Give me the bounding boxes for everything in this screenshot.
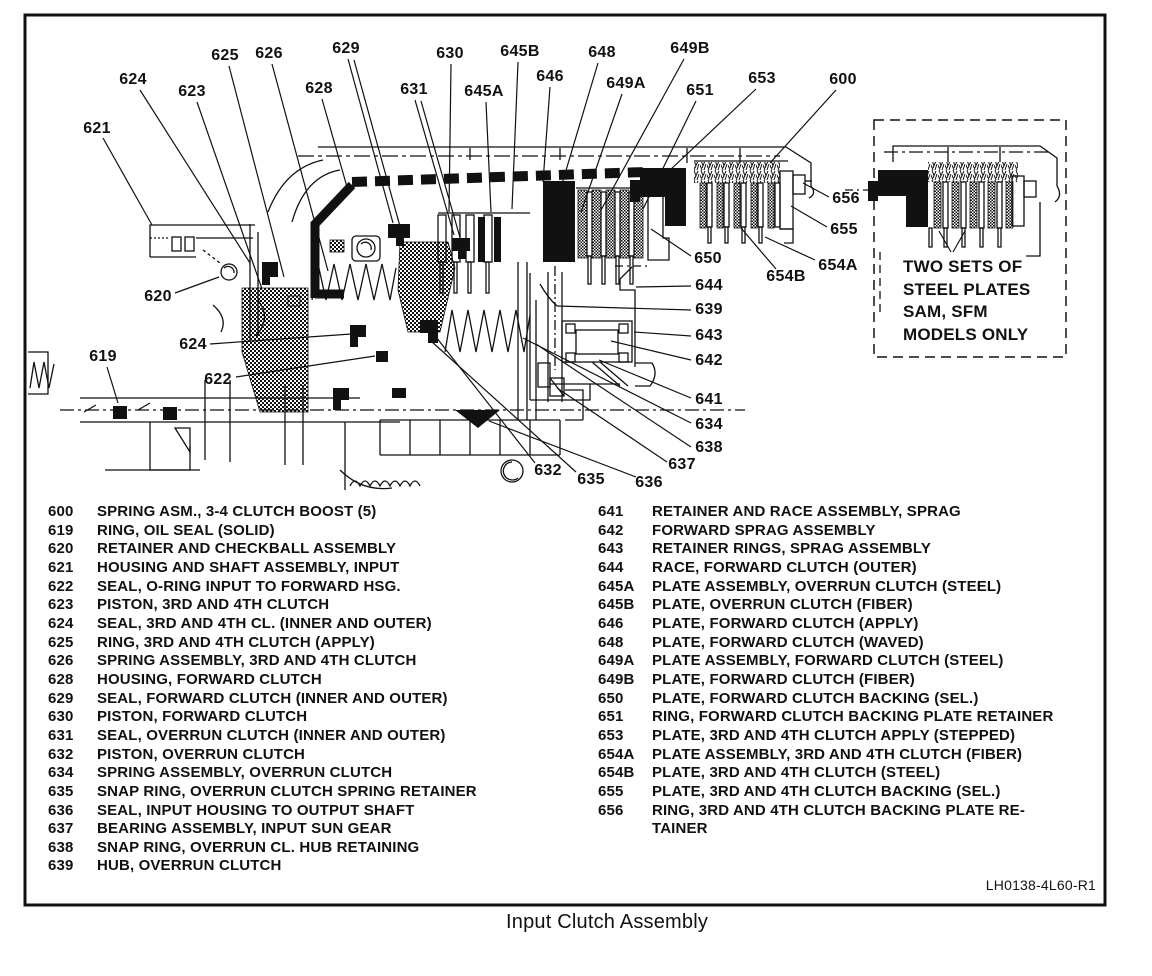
- part-row: 619RING, OIL SEAL (SOLID): [48, 522, 477, 541]
- part-number: 639: [48, 857, 97, 876]
- callout-655: 655: [830, 221, 858, 239]
- part-number: 629: [48, 690, 97, 709]
- part-number: 645B: [598, 596, 652, 615]
- callout-619: 619: [89, 348, 117, 366]
- inset-note-line: TWO SETS OF: [903, 256, 1030, 279]
- part-number: 635: [48, 783, 97, 802]
- part-description: SPRING ASSEMBLY, OVERRUN CLUTCH: [97, 764, 392, 783]
- part-row: 634SPRING ASSEMBLY, OVERRUN CLUTCH: [48, 764, 477, 783]
- callout-644: 644: [695, 277, 723, 295]
- part-description: SEAL, 3RD AND 4TH CL. (INNER AND OUTER): [97, 615, 432, 634]
- part-row: 620RETAINER AND CHECKBALL ASSEMBLY: [48, 540, 477, 559]
- inset-note-line: MODELS ONLY: [903, 324, 1030, 347]
- part-row: 637BEARING ASSEMBLY, INPUT SUN GEAR: [48, 820, 477, 839]
- part-number: 636: [48, 802, 97, 821]
- part-number: 644: [598, 559, 652, 578]
- callout-638: 638: [695, 439, 723, 457]
- callout-648: 648: [588, 44, 616, 62]
- part-row: 645APLATE ASSEMBLY, OVERRUN CLUTCH (STEE…: [598, 578, 1053, 597]
- part-number: 634: [48, 764, 97, 783]
- part-row: 649BPLATE, FORWARD CLUTCH (FIBER): [598, 671, 1053, 690]
- part-number: 648: [598, 634, 652, 653]
- callout-654A: 654A: [818, 257, 857, 275]
- callout-645B: 645B: [500, 43, 539, 61]
- callout-649B: 649B: [670, 40, 709, 58]
- part-number: 646: [598, 615, 652, 634]
- part-number: 650: [598, 690, 652, 709]
- part-row: 628HOUSING, FORWARD CLUTCH: [48, 671, 477, 690]
- part-row: 626SPRING ASSEMBLY, 3RD AND 4TH CLUTCH: [48, 652, 477, 671]
- part-row: 650PLATE, FORWARD CLUTCH BACKING (SEL.): [598, 690, 1053, 709]
- part-row: 654APLATE ASSEMBLY, 3RD AND 4TH CLUTCH (…: [598, 746, 1053, 765]
- part-description: PISTON, FORWARD CLUTCH: [97, 708, 307, 727]
- part-number: 637: [48, 820, 97, 839]
- part-description: RING, FORWARD CLUTCH BACKING PLATE RETAI…: [652, 708, 1053, 727]
- callout-649A: 649A: [606, 75, 645, 93]
- callout-623: 623: [178, 83, 206, 101]
- part-row: 649APLATE ASSEMBLY, FORWARD CLUTCH (STEE…: [598, 652, 1053, 671]
- part-number: 645A: [598, 578, 652, 597]
- part-description: HOUSING, FORWARD CLUTCH: [97, 671, 322, 690]
- figure-page: 621 624 623 625 626 628 629 631 630 645A…: [0, 0, 1152, 976]
- inset-black: [868, 170, 928, 227]
- part-number: 654B: [598, 764, 652, 783]
- part-row: 639HUB, OVERRUN CLUTCH: [48, 857, 477, 876]
- part-row: 655PLATE, 3RD AND 4TH CLUTCH BACKING (SE…: [598, 783, 1053, 802]
- part-description: PLATE, FORWARD CLUTCH (WAVED): [652, 634, 924, 653]
- part-row: 621HOUSING AND SHAFT ASSEMBLY, INPUT: [48, 559, 477, 578]
- callout-629: 629: [332, 40, 360, 58]
- part-description: SEAL, OVERRUN CLUTCH (INNER AND OUTER): [97, 727, 445, 746]
- part-description: BEARING ASSEMBLY, INPUT SUN GEAR: [97, 820, 392, 839]
- part-description: SEAL, INPUT HOUSING TO OUTPUT SHAFT: [97, 802, 414, 821]
- part-row: 622SEAL, O-RING INPUT TO FORWARD HSG.: [48, 578, 477, 597]
- callout-646: 646: [536, 68, 564, 86]
- callout-643: 643: [695, 327, 723, 345]
- part-description: PISTON, 3RD AND 4TH CLUTCH: [97, 596, 329, 615]
- part-row: 630PISTON, FORWARD CLUTCH: [48, 708, 477, 727]
- part-number: 630: [48, 708, 97, 727]
- callout-620: 620: [144, 288, 172, 306]
- part-row: 631SEAL, OVERRUN CLUTCH (INNER AND OUTER…: [48, 727, 477, 746]
- part-number: 656: [598, 802, 652, 839]
- part-number: 649A: [598, 652, 652, 671]
- callout-651: 651: [686, 82, 714, 100]
- part-description: PLATE, 3RD AND 4TH CLUTCH (STEEL): [652, 764, 940, 783]
- part-number: 622: [48, 578, 97, 597]
- part-description: SPRING ASSEMBLY, 3RD AND 4TH CLUTCH: [97, 652, 416, 671]
- part-row: 641RETAINER AND RACE ASSEMBLY, SPRAG: [598, 503, 1053, 522]
- part-number: 649B: [598, 671, 652, 690]
- part-description: PLATE, 3RD AND 4TH CLUTCH APPLY (STEPPED…: [652, 727, 1015, 746]
- part-row: 653PLATE, 3RD AND 4TH CLUTCH APPLY (STEP…: [598, 727, 1053, 746]
- part-number: 624: [48, 615, 97, 634]
- part-description: PLATE, OVERRUN CLUTCH (FIBER): [652, 596, 913, 615]
- part-description: SPRING ASM., 3-4 CLUTCH BOOST (5): [97, 503, 376, 522]
- part-number: 632: [48, 746, 97, 765]
- part-number: 620: [48, 540, 97, 559]
- part-number: 653: [598, 727, 652, 746]
- part-description: PLATE, 3RD AND 4TH CLUTCH BACKING (SEL.): [652, 783, 1001, 802]
- part-row: 632PISTON, OVERRUN CLUTCH: [48, 746, 477, 765]
- part-description: PLATE, FORWARD CLUTCH (APPLY): [652, 615, 919, 634]
- part-row: 642FORWARD SPRAG ASSEMBLY: [598, 522, 1053, 541]
- callout-621: 621: [83, 120, 111, 138]
- callout-654B: 654B: [766, 268, 805, 286]
- part-row: 623PISTON, 3RD AND 4TH CLUTCH: [48, 596, 477, 615]
- part-description: RING, 3RD AND 4TH CLUTCH BACKING PLATE R…: [652, 802, 1025, 839]
- part-description: SNAP RING, OVERRUN CL. HUB RETAINING: [97, 839, 419, 858]
- part-description: PLATE, FORWARD CLUTCH BACKING (SEL.): [652, 690, 979, 709]
- part-description: PLATE ASSEMBLY, 3RD AND 4TH CLUTCH (FIBE…: [652, 746, 1022, 765]
- callout-650: 650: [694, 250, 722, 268]
- part-description: SEAL, O-RING INPUT TO FORWARD HSG.: [97, 578, 401, 597]
- callout-642: 642: [695, 352, 723, 370]
- part-row: 629SEAL, FORWARD CLUTCH (INNER AND OUTER…: [48, 690, 477, 709]
- inset-hatched: [928, 162, 1018, 228]
- callout-622: 622: [204, 371, 232, 389]
- part-number: 600: [48, 503, 97, 522]
- part-number: 642: [598, 522, 652, 541]
- parts-list-left-column: 600SPRING ASM., 3-4 CLUTCH BOOST (5)619R…: [48, 503, 477, 876]
- callout-628: 628: [305, 80, 333, 98]
- callout-626: 626: [255, 45, 283, 63]
- callout-653: 653: [748, 70, 776, 88]
- callout-600: 600: [829, 71, 857, 89]
- callout-645A: 645A: [464, 83, 503, 101]
- part-description: FORWARD SPRAG ASSEMBLY: [652, 522, 876, 541]
- part-number: 651: [598, 708, 652, 727]
- part-description: SEAL, FORWARD CLUTCH (INNER AND OUTER): [97, 690, 448, 709]
- callout-630: 630: [436, 45, 464, 63]
- callout-632: 632: [534, 462, 562, 480]
- part-description: RACE, FORWARD CLUTCH (OUTER): [652, 559, 917, 578]
- callout-624: 624: [119, 71, 147, 89]
- part-row: 645BPLATE, OVERRUN CLUTCH (FIBER): [598, 596, 1053, 615]
- part-row: 635SNAP RING, OVERRUN CLUTCH SPRING RETA…: [48, 783, 477, 802]
- part-number: 643: [598, 540, 652, 559]
- callout-635: 635: [577, 471, 605, 489]
- part-description: RETAINER AND RACE ASSEMBLY, SPRAG: [652, 503, 961, 522]
- part-row: 600SPRING ASM., 3-4 CLUTCH BOOST (5): [48, 503, 477, 522]
- part-number: 655: [598, 783, 652, 802]
- part-description: PLATE, FORWARD CLUTCH (FIBER): [652, 671, 915, 690]
- part-description: RING, OIL SEAL (SOLID): [97, 522, 275, 541]
- parts-list-right-column: 641RETAINER AND RACE ASSEMBLY, SPRAG642F…: [598, 503, 1053, 839]
- part-number: 631: [48, 727, 97, 746]
- callout-656: 656: [832, 190, 860, 208]
- part-row: 656RING, 3RD AND 4TH CLUTCH BACKING PLAT…: [598, 802, 1053, 839]
- callout-634: 634: [695, 416, 723, 434]
- callout-641: 641: [695, 391, 723, 409]
- part-description: PLATE ASSEMBLY, OVERRUN CLUTCH (STEEL): [652, 578, 1001, 597]
- inset-note: TWO SETS OF STEEL PLATES SAM, SFM MODELS…: [903, 256, 1030, 346]
- part-row: 643RETAINER RINGS, SPRAG ASSEMBLY: [598, 540, 1053, 559]
- callout-636: 636: [635, 474, 663, 492]
- part-row: 624SEAL, 3RD AND 4TH CL. (INNER AND OUTE…: [48, 615, 477, 634]
- part-number: 626: [48, 652, 97, 671]
- part-number: 619: [48, 522, 97, 541]
- part-number: 625: [48, 634, 97, 653]
- figure-caption: Input Clutch Assembly: [506, 911, 708, 934]
- part-row: 644RACE, FORWARD CLUTCH (OUTER): [598, 559, 1053, 578]
- part-description: HUB, OVERRUN CLUTCH: [97, 857, 282, 876]
- callout-631: 631: [400, 81, 428, 99]
- part-row: 648PLATE, FORWARD CLUTCH (WAVED): [598, 634, 1053, 653]
- part-number: 641: [598, 503, 652, 522]
- part-description: SNAP RING, OVERRUN CLUTCH SPRING RETAINE…: [97, 783, 477, 802]
- part-description: HOUSING AND SHAFT ASSEMBLY, INPUT: [97, 559, 399, 578]
- part-description: RING, 3RD AND 4TH CLUTCH (APPLY): [97, 634, 375, 653]
- part-number: 628: [48, 671, 97, 690]
- callout-624b: 624: [179, 336, 207, 354]
- part-row: 651RING, FORWARD CLUTCH BACKING PLATE RE…: [598, 708, 1053, 727]
- part-number: 638: [48, 839, 97, 858]
- part-description: PLATE ASSEMBLY, FORWARD CLUTCH (STEEL): [652, 652, 1004, 671]
- part-number: 623: [48, 596, 97, 615]
- part-number: 621: [48, 559, 97, 578]
- drawing-reference-code: LH0138-4L60-R1: [920, 877, 1096, 893]
- callout-639: 639: [695, 301, 723, 319]
- part-description: RETAINER AND CHECKBALL ASSEMBLY: [97, 540, 396, 559]
- part-description: PISTON, OVERRUN CLUTCH: [97, 746, 305, 765]
- inset-note-line: SAM, SFM: [903, 301, 1030, 324]
- part-row: 654BPLATE, 3RD AND 4TH CLUTCH (STEEL): [598, 764, 1053, 783]
- part-row: 646PLATE, FORWARD CLUTCH (APPLY): [598, 615, 1053, 634]
- callout-637: 637: [668, 456, 696, 474]
- callout-625: 625: [211, 47, 239, 65]
- part-description: RETAINER RINGS, SPRAG ASSEMBLY: [652, 540, 931, 559]
- part-row: 638SNAP RING, OVERRUN CL. HUB RETAINING: [48, 839, 477, 858]
- part-row: 636SEAL, INPUT HOUSING TO OUTPUT SHAFT: [48, 802, 477, 821]
- part-number: 654A: [598, 746, 652, 765]
- inset-note-line: STEEL PLATES: [903, 279, 1030, 302]
- part-row: 625RING, 3RD AND 4TH CLUTCH (APPLY): [48, 634, 477, 653]
